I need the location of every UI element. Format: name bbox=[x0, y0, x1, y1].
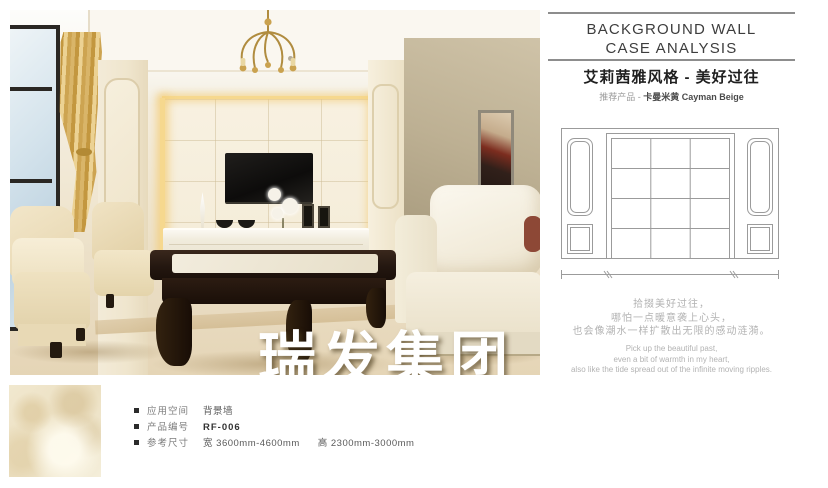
catalog-page: 瑞发集团 BACKGROUND WALL CASE ANALYSIS 艾莉茜雅风… bbox=[0, 0, 828, 488]
product-name: 卡曼米黄 Cayman Beige bbox=[643, 92, 744, 102]
spec-label: 产品编号 bbox=[147, 422, 189, 433]
poem-cn-line3: 也会像潮水一样扩散出无限的感动涟漪。 bbox=[548, 325, 795, 339]
spec-label: 应用空间 bbox=[147, 406, 189, 417]
square-bullet-icon bbox=[134, 440, 139, 445]
panel-title-line2: CASE ANALYSIS bbox=[548, 39, 795, 58]
poem-en-line2: even a bit of warmth in my heart, bbox=[548, 355, 795, 366]
corner-molding-frame bbox=[372, 84, 399, 209]
spec-row-product-code: 产品编号RF-006 bbox=[134, 420, 474, 436]
product-label: 推荐产品 - bbox=[599, 92, 643, 102]
flower-blossom bbox=[272, 208, 283, 219]
coffee-table-apron bbox=[162, 278, 386, 304]
window-mullion bbox=[10, 179, 52, 183]
panel-title-line1: BACKGROUND WALL bbox=[548, 20, 795, 39]
coffee-table-marble-inset bbox=[172, 254, 378, 273]
case-analysis-panel: BACKGROUND WALL CASE ANALYSIS 艾莉茜雅风格 - 美… bbox=[548, 0, 795, 488]
spec-value: RF-006 bbox=[203, 422, 241, 433]
poem-cn-line2: 哪怕一点暖意袭上心头， bbox=[548, 312, 795, 326]
square-bullet-icon bbox=[134, 408, 139, 413]
poem-en-line3: also like the tide spread out of the inf… bbox=[548, 365, 795, 376]
poem-en-line1: Pick up the beautiful past, bbox=[548, 344, 795, 355]
spec-row-application: 应用空间背景墙 bbox=[134, 404, 474, 420]
flower-blossom bbox=[268, 188, 281, 201]
spec-value-height: 高 2300mm-3000mm bbox=[318, 438, 415, 449]
window-mullion bbox=[10, 87, 52, 91]
chair-foot bbox=[106, 294, 114, 308]
gold-curtain bbox=[56, 32, 102, 232]
poem-cn-line1: 拾掇美好过往， bbox=[548, 298, 795, 312]
square-bullet-icon bbox=[134, 424, 139, 429]
spec-value-width: 宽 3600mm-4600mm bbox=[203, 438, 300, 449]
coffee-table-leg bbox=[156, 298, 192, 366]
poem-chinese: 拾掇美好过往， 哪怕一点暖意袭上心头， 也会像潮水一样扩散出无限的感动涟漪。 bbox=[548, 298, 795, 339]
led-strip-top bbox=[162, 96, 374, 99]
armchair-far-seat bbox=[94, 250, 154, 296]
panel-title: BACKGROUND WALL CASE ANALYSIS bbox=[548, 20, 795, 58]
poem-english: Pick up the beautiful past, even a bit o… bbox=[548, 344, 795, 376]
wall-elevation-drawing bbox=[560, 118, 782, 292]
chair-foot bbox=[50, 342, 62, 358]
chair-foot bbox=[76, 328, 85, 341]
chandelier-icon bbox=[226, 10, 310, 90]
photo-frame bbox=[302, 204, 314, 228]
watermark-text: 瑞发集团 bbox=[258, 312, 540, 375]
wall-painting bbox=[478, 110, 514, 196]
divider-top bbox=[548, 12, 795, 14]
red-pillow bbox=[524, 216, 540, 252]
spec-label: 参考尺寸 bbox=[147, 438, 189, 449]
photo-frame bbox=[318, 206, 330, 228]
divider-mid bbox=[548, 59, 795, 61]
living-room-photo: 瑞发集团 bbox=[10, 10, 540, 375]
tile-sample-swatch bbox=[9, 385, 101, 477]
painting-artwork bbox=[481, 113, 511, 193]
style-title: 艾莉茜雅风格 - 美好过往 bbox=[548, 66, 795, 87]
armchair-near-seat bbox=[14, 272, 90, 330]
recommended-product-line: 推荐产品 - 卡曼米黄 Cayman Beige bbox=[548, 90, 795, 103]
product-specs: 应用空间背景墙 产品编号RF-006 参考尺寸宽 3600mm-4600mm高 … bbox=[134, 404, 474, 452]
spec-row-reference-size: 参考尺寸宽 3600mm-4600mm高 2300mm-3000mm bbox=[134, 436, 474, 452]
flower-blossom bbox=[282, 198, 298, 214]
spec-value: 背景墙 bbox=[203, 406, 233, 417]
